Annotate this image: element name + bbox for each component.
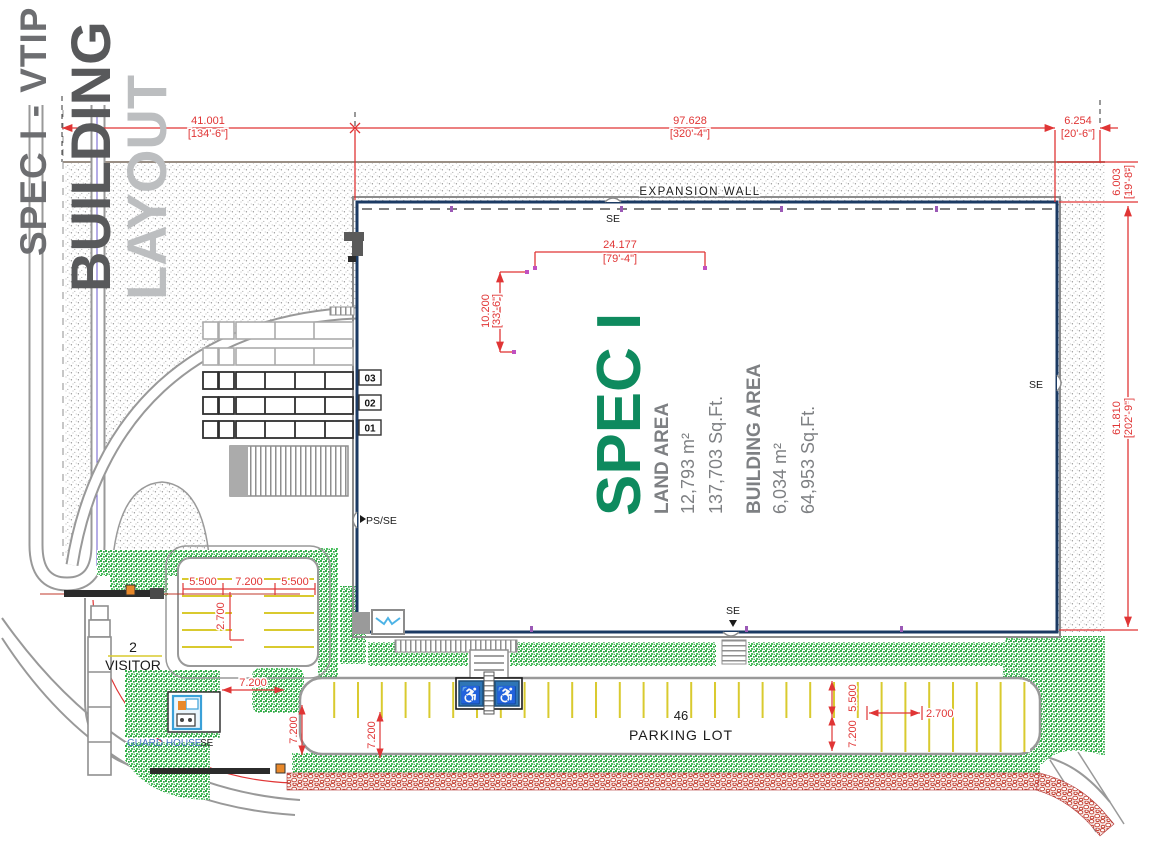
dim-parking-aisle: 7.200 xyxy=(847,720,859,748)
building-area-label: BUILDING AREA xyxy=(744,363,765,514)
future-truck xyxy=(203,348,353,365)
entry-gate-truck xyxy=(64,590,152,597)
building-name: SPEC I xyxy=(585,313,654,516)
se-stairs xyxy=(722,640,746,664)
dim-site-right-m: 6.254 xyxy=(1064,115,1092,127)
guard-house xyxy=(168,692,220,732)
visitor-label: VISITOR xyxy=(105,657,161,673)
dock-label-03: 03 xyxy=(364,374,376,385)
guard-desk xyxy=(178,701,186,710)
ramp-edge xyxy=(230,446,248,496)
gate-truck-cab xyxy=(150,588,164,599)
parking-count: 46 xyxy=(674,708,688,723)
dim-visitor-stall-left: 5.500 xyxy=(189,576,217,588)
ada-parking: ♿ ♿ xyxy=(456,672,522,714)
wheelchair-icon: ♿ xyxy=(496,685,517,705)
dock-grate xyxy=(330,307,354,315)
water-tank xyxy=(372,610,404,634)
dock-truck-03 xyxy=(203,372,353,389)
land-area-metric: 12,793 m² xyxy=(678,433,698,514)
title-line1: SPEC I - VTIP xyxy=(13,7,54,256)
dim-parking-stall-depth: 5.500 xyxy=(847,684,859,712)
gate-post xyxy=(126,585,135,595)
dock-label-02: 02 xyxy=(364,399,376,410)
dim-visitor-stall-width: 2.700 xyxy=(215,602,227,630)
parking-lot-label: PARKING LOT xyxy=(629,727,733,743)
dim-site-mid-ft: [320'-4"] xyxy=(670,128,710,140)
dim-expansion-depth-ft: [19'-8"] xyxy=(1123,165,1135,199)
title-line2: BUILDING xyxy=(59,21,122,292)
ada-aisle xyxy=(484,672,494,714)
loading-docks: 03 02 01 xyxy=(203,307,381,496)
riprap-channel xyxy=(287,773,1114,836)
dim-expansion-depth-m: 6.003 xyxy=(1111,168,1123,196)
dock-number-plates: 03 02 01 xyxy=(359,370,381,435)
building-area-metric: 6,034 m² xyxy=(770,443,790,514)
se-label-top: SE xyxy=(606,213,620,225)
visitor-count: 2 xyxy=(129,639,137,655)
se-label-bottom: SE xyxy=(726,605,740,617)
wheelchair-icon: ♿ xyxy=(460,685,481,705)
se-bump-bottom xyxy=(723,632,739,636)
land-area-imperial: 137,703 Sq.Ft. xyxy=(706,396,726,514)
exit-gate-post xyxy=(276,764,285,773)
dim-interior-width-ft: [79'-4"] xyxy=(603,253,637,265)
dock-label-01: 01 xyxy=(364,424,376,435)
drawing-title: SPEC I - VTIP BUILDING LAYOUT xyxy=(13,7,178,300)
visitor-truck xyxy=(88,606,111,775)
site-plan-canvas: 46 PARKING LOT SPEC I LAND AREA xyxy=(0,0,1160,858)
dim-yard-aisle: 7.200 xyxy=(239,677,267,689)
dim-interior-width-m: 24.177 xyxy=(603,239,637,251)
dim-site-left-m: 41.001 xyxy=(191,115,225,127)
dim-parking-stall-width: 2.700 xyxy=(926,708,954,720)
dim-yard-road-b: 7.200 xyxy=(366,721,378,749)
exit-gate xyxy=(150,768,270,774)
right-dimension-text: 6.003 [19'-8"] 61.810 [202'-9"] xyxy=(1111,165,1135,438)
dim-site-left-ft: [134'-6"] xyxy=(188,128,228,140)
expansion-wall-label: EXPANSION WALL xyxy=(639,186,760,198)
dim-building-depth-m: 61.810 xyxy=(1111,401,1123,435)
building-area-imperial: 64,953 Sq.Ft. xyxy=(798,406,818,514)
site-plan-drawing: 46 PARKING LOT SPEC I LAND AREA xyxy=(0,0,1160,858)
dim-visitor-stall-right: 5.500 xyxy=(281,576,309,588)
se-label-guard: SE xyxy=(200,738,214,749)
dim-interior-depth-ft: [33'-6"] xyxy=(491,294,503,328)
ps-se-label: PS/SE xyxy=(366,515,397,527)
dim-site-right-ft: [20'-6"] xyxy=(1061,128,1095,140)
building xyxy=(344,197,1061,637)
inner-parking xyxy=(166,546,330,678)
title-line3: LAYOUT xyxy=(115,75,178,300)
dim-yard-road-a: 7.200 xyxy=(288,716,300,744)
dim-building-depth-ft: [202'-9"] xyxy=(1123,398,1135,438)
dock-truck-02 xyxy=(203,397,353,414)
pump-block xyxy=(352,612,370,634)
dim-visitor-aisle: 7.200 xyxy=(235,576,263,588)
future-truck xyxy=(203,322,353,339)
dim-site-mid-m: 97.628 xyxy=(673,115,707,127)
se-label-right: SE xyxy=(1029,379,1043,391)
land-area-label: LAND AREA xyxy=(652,403,673,514)
dock-truck-01 xyxy=(203,421,353,438)
guard-house-label: GUARD HOUSE xyxy=(127,738,202,749)
